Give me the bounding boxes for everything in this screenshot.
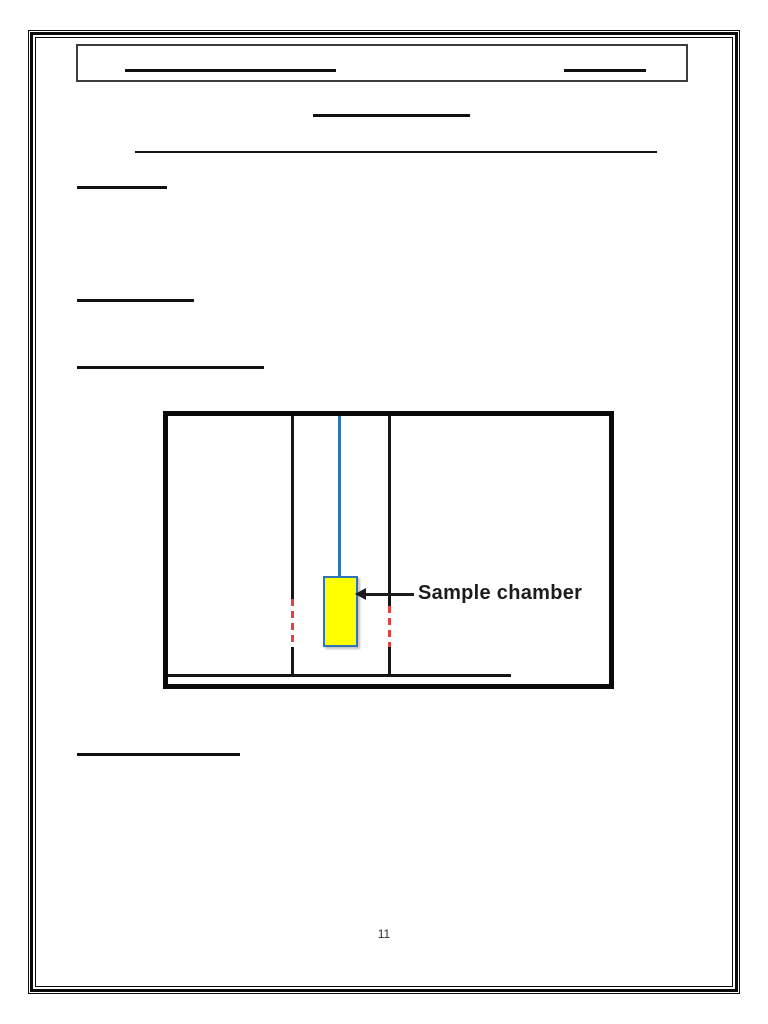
header-underline-right bbox=[564, 69, 646, 72]
title-underline bbox=[313, 114, 470, 117]
arrow-left-icon bbox=[355, 588, 366, 600]
header-underline-left bbox=[125, 69, 336, 72]
suspension-rod bbox=[338, 416, 341, 578]
sample-chamber bbox=[323, 576, 358, 647]
heater-dash-right bbox=[388, 606, 391, 647]
page-number: 11 bbox=[0, 927, 768, 941]
furnace-diagram-inner: Sample chamber bbox=[168, 416, 609, 684]
subtitle-rule bbox=[135, 151, 657, 153]
document-page: Sample chamber 11 bbox=[0, 0, 768, 1024]
heading-underline-1 bbox=[77, 186, 167, 189]
furnace-diagram: Sample chamber bbox=[163, 411, 614, 689]
label-arrow-line bbox=[365, 593, 414, 596]
furnace-base-line bbox=[168, 674, 511, 677]
heading-underline-3 bbox=[77, 366, 264, 369]
sample-chamber-label: Sample chamber bbox=[418, 582, 582, 605]
heading-underline-4 bbox=[77, 753, 240, 756]
heater-dash-left bbox=[291, 599, 294, 647]
heading-underline-2 bbox=[77, 299, 194, 302]
header-box bbox=[76, 44, 688, 82]
